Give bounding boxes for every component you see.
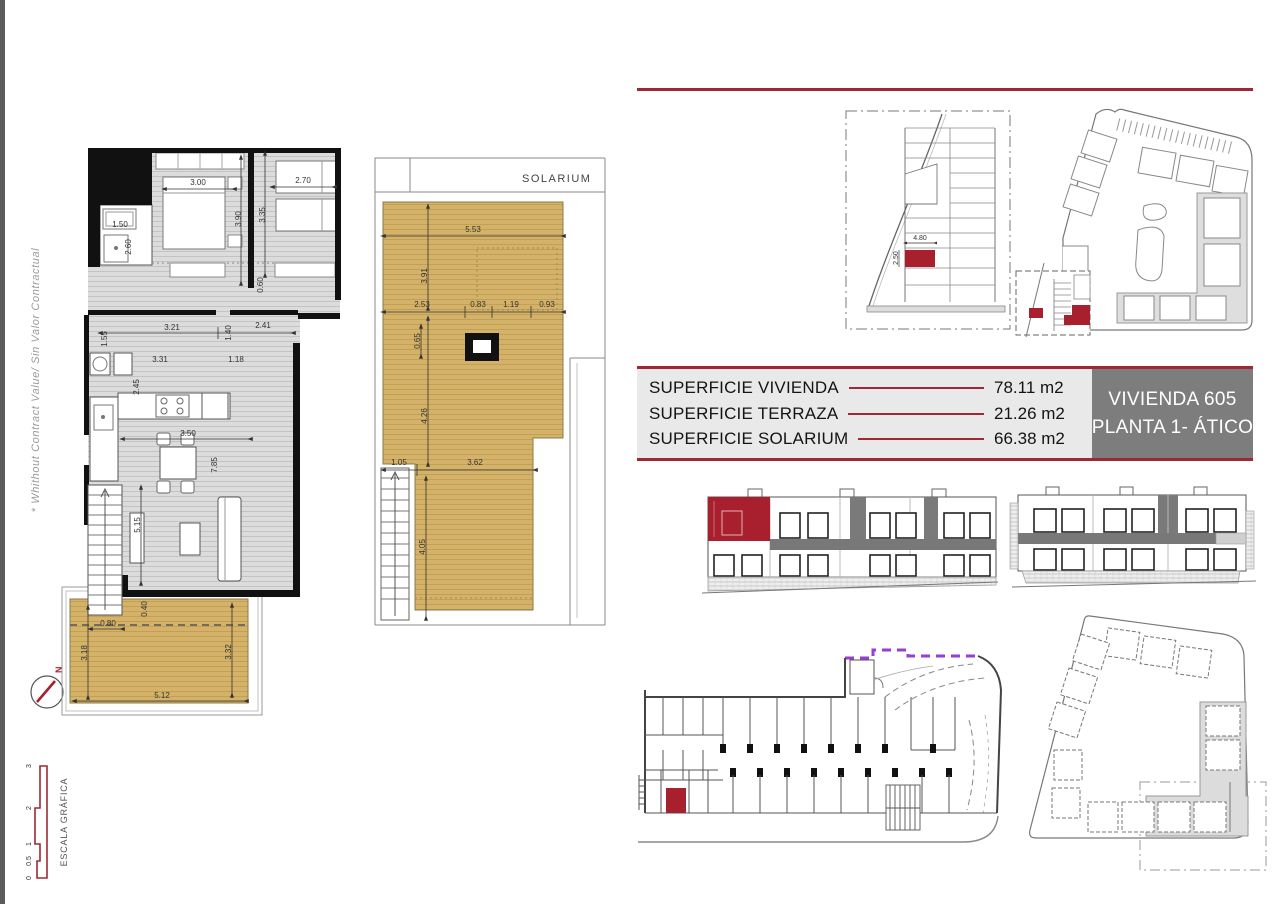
stove-icon (156, 395, 189, 417)
dim-label: 5.12 (154, 691, 170, 700)
garage-stairs (886, 785, 920, 830)
ramp-entrance-line (845, 650, 978, 658)
dim-label: 0.93 (539, 300, 555, 309)
unit-name: VIVIENDA 605 (1108, 386, 1236, 414)
dim-label: 1.50 (112, 220, 128, 229)
page-left-border (0, 0, 5, 904)
dim-label: 3.91 (420, 268, 429, 284)
dim-label: 0.83 (470, 300, 486, 309)
dim-label: 4.05 (418, 539, 427, 555)
dim-label: 3.62 (467, 458, 483, 467)
front-elevation (700, 481, 1005, 596)
parking-location-plan: 4.80 2.50 (845, 110, 1013, 332)
contract-disclaimer-note: * Whithout Contract Value/ Sin Valor Con… (30, 80, 46, 680)
area-label: SUPERFICIE VIVIENDA (649, 378, 839, 398)
dim-label: 3.90 (234, 211, 243, 227)
scale-tick: 0.5 (26, 856, 33, 866)
dim-label: 4.80 (913, 235, 927, 242)
dim-label: 3.32 (224, 644, 233, 660)
dim-label: 2.70 (295, 176, 311, 185)
highlighted-parking-stall (1029, 308, 1043, 318)
bed-double (163, 177, 225, 249)
highlighted-parking-stall (905, 250, 935, 267)
area-value: 21.26 m2 (994, 404, 1080, 424)
area-summary-panel: SUPERFICIE VIVIENDA 78.11 m2 SUPERFICIE … (637, 366, 1253, 461)
phase-site-plan (1028, 610, 1268, 880)
apartment-floor-plan: 3.00 2.70 1.50 3.21 2.41 3.31 1.18 3.50 … (60, 135, 365, 725)
solarium-deck (383, 202, 563, 610)
scale-tick: 1 (26, 842, 33, 846)
dim-label: 4.26 (420, 408, 429, 424)
dim-label: 1.19 (503, 300, 519, 309)
dim-label: 2.53 (414, 300, 430, 309)
staircase (88, 485, 122, 615)
dim-label: 3.50 (180, 429, 196, 438)
area-label: SUPERFICIE TERRAZA (649, 404, 838, 424)
rear-elevation (1008, 481, 1260, 596)
scale-tick: 2 (26, 806, 33, 810)
dim-label: 2.41 (255, 321, 271, 330)
dim-label: 2.50 (893, 251, 900, 265)
dim-label: 1.18 (228, 355, 244, 364)
dim-label: 5.15 (133, 517, 142, 533)
garage-floor-plan (633, 620, 1021, 865)
solarium-plan: SOLARIUM 5.53 2.53 0.83 1.19 0.93 1.05 3… (372, 148, 642, 633)
dim-label: 2.60 (124, 239, 133, 255)
sofa (218, 497, 241, 581)
area-label: SUPERFICIE SOLARIUM (649, 429, 848, 449)
dim-label: 0.40 (140, 601, 149, 617)
dim-label: 3.18 (80, 645, 89, 661)
leader-line (849, 387, 984, 389)
staircase (381, 468, 409, 620)
unit-location-inset (1014, 263, 1094, 341)
dim-label: 3.35 (258, 207, 267, 223)
leader-line (848, 413, 984, 415)
dim-label: 1.40 (224, 325, 233, 341)
dim-label: 3.21 (164, 323, 180, 332)
highlighted-garage-stall (666, 788, 686, 813)
header-rule (637, 88, 1253, 91)
dim-label: 3.00 (190, 178, 206, 187)
highlighted-unit-elevation (708, 497, 770, 541)
dim-label: 1.05 (391, 458, 407, 467)
dim-label: 0.80 (100, 619, 116, 628)
dim-label: 1.55 (100, 331, 109, 347)
dim-label: 2.45 (132, 379, 141, 395)
area-table: SUPERFICIE VIVIENDA 78.11 m2 SUPERFICIE … (637, 369, 1092, 458)
leader-line (858, 438, 984, 440)
table-row: SUPERFICIE TERRAZA 21.26 m2 (637, 404, 1092, 424)
area-value: 66.38 m2 (994, 429, 1080, 449)
area-value: 78.11 m2 (994, 378, 1080, 398)
table-row: SUPERFICIE SOLARIUM 66.38 m2 (637, 429, 1092, 449)
bed-single (276, 199, 336, 231)
solarium-title: SOLARIUM (522, 173, 591, 185)
table-row: SUPERFICIE VIVIENDA 78.11 m2 (637, 378, 1092, 398)
dim-label: 0.65 (413, 333, 422, 349)
scale-bar-title: ESCALA GRÁFICA (59, 762, 71, 882)
dim-label: 0.60 (256, 277, 265, 293)
unit-floor: PLANTA 1- ÁTICO (1092, 414, 1253, 442)
dim-label: 5.53 (465, 225, 481, 234)
unit-identifier-box: VIVIENDA 605 PLANTA 1- ÁTICO (1092, 369, 1253, 458)
dim-label: 7.85 (210, 457, 219, 473)
scale-tick: 0 (26, 876, 33, 880)
dim-label: 3.31 (152, 355, 168, 364)
scale-tick: 3 (26, 764, 33, 768)
